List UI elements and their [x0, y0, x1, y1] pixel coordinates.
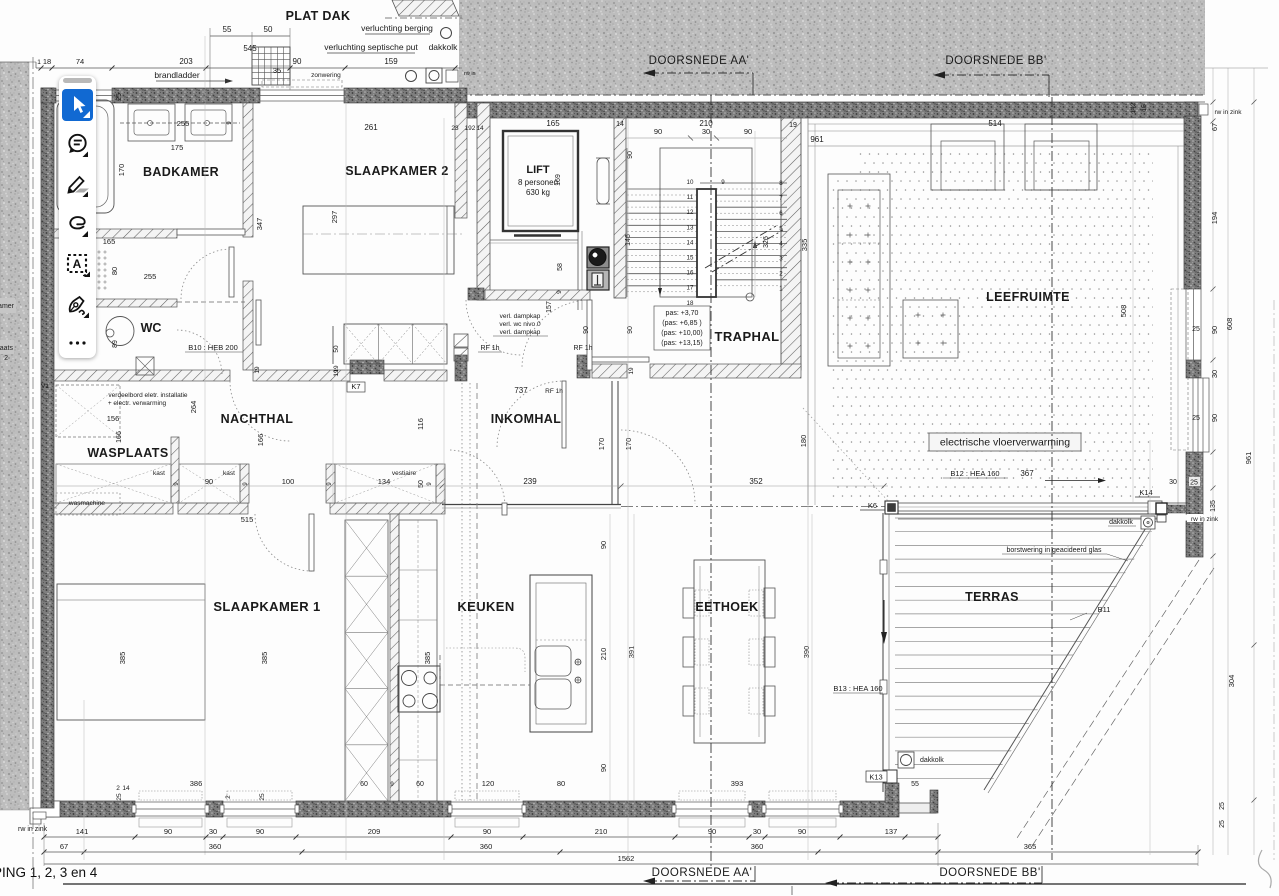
svg-text:194: 194	[1210, 212, 1219, 225]
svg-text:360: 360	[751, 842, 764, 851]
svg-text:391: 391	[627, 646, 636, 659]
svg-text:304: 304	[1227, 675, 1236, 688]
svg-text:19: 19	[254, 366, 261, 374]
svg-text:90: 90	[205, 477, 213, 486]
svg-text:50: 50	[264, 25, 273, 34]
svg-text:80: 80	[557, 779, 565, 788]
svg-text:90: 90	[256, 827, 264, 836]
svg-text:B13 : HEA 160: B13 : HEA 160	[833, 684, 882, 693]
svg-text:255: 255	[144, 272, 157, 281]
svg-text:wasmachine: wasmachine	[68, 500, 106, 507]
svg-text:14: 14	[687, 239, 694, 246]
svg-text:326: 326	[763, 236, 770, 248]
svg-text:30: 30	[753, 827, 761, 836]
svg-text:WC: WC	[141, 321, 162, 335]
svg-text:961: 961	[1244, 452, 1253, 465]
svg-text:17: 17	[687, 285, 694, 292]
svg-text:14: 14	[122, 785, 130, 792]
svg-text:90: 90	[483, 827, 491, 836]
svg-text:6: 6	[779, 210, 783, 217]
svg-text:DOORSNEDE AA': DOORSNEDE AA'	[649, 55, 750, 67]
svg-text:360: 360	[209, 842, 222, 851]
svg-text:347: 347	[255, 218, 264, 231]
svg-text:verl. dampkap: verl. dampkap	[500, 313, 541, 320]
svg-text:DOORSNEDE AA': DOORSNEDE AA'	[652, 867, 753, 879]
svg-text:141: 141	[76, 827, 89, 836]
svg-text:verl. wc nivo 0: verl. wc nivo 0	[499, 321, 541, 328]
svg-text:137: 137	[885, 827, 898, 836]
svg-text:25: 25	[1192, 326, 1200, 333]
svg-text:rw in zink: rw in zink	[1214, 109, 1242, 116]
svg-text:165: 165	[546, 119, 560, 128]
svg-text:961: 961	[810, 135, 824, 144]
svg-text:SLAAPKAMER 2: SLAAPKAMER 2	[345, 164, 448, 178]
svg-text:brandladder: brandladder	[154, 70, 200, 80]
svg-text:dakkolk: dakkolk	[1109, 519, 1133, 526]
svg-text:14: 14	[616, 121, 624, 128]
svg-text:11: 11	[687, 194, 694, 201]
svg-text:19: 19	[628, 367, 635, 375]
svg-text:12: 12	[687, 209, 694, 216]
svg-text:35: 35	[273, 66, 281, 75]
svg-text:170: 170	[117, 164, 126, 177]
svg-text:135: 135	[1210, 500, 1217, 512]
svg-text:(pas: +10,00): (pas: +10,00)	[661, 330, 702, 337]
svg-text:170: 170	[624, 438, 633, 451]
svg-text:365: 365	[1024, 842, 1037, 851]
svg-text:210: 210	[595, 827, 608, 836]
svg-text:90: 90	[1210, 326, 1219, 334]
svg-text:90: 90	[599, 764, 608, 772]
svg-text:385: 385	[423, 652, 432, 665]
svg-text:8: 8	[779, 180, 783, 187]
svg-text:dakkolk: dakkolk	[429, 42, 459, 52]
svg-text:rw in zink: rw in zink	[1191, 516, 1219, 523]
svg-text:K13: K13	[869, 773, 882, 782]
svg-text:90: 90	[654, 127, 662, 136]
svg-text:55: 55	[911, 781, 919, 788]
svg-text:1562: 1562	[618, 854, 635, 863]
svg-text:RF 1h: RF 1h	[480, 345, 499, 352]
svg-text:TERRAS: TERRAS	[965, 590, 1019, 604]
svg-text:25: 25	[1219, 802, 1226, 810]
svg-text:A: A	[73, 257, 82, 271]
svg-text:LIFT: LIFT	[526, 164, 549, 176]
svg-text:25: 25	[1219, 820, 1226, 828]
svg-text:9: 9	[721, 179, 725, 186]
svg-text:15: 15	[687, 255, 694, 262]
svg-text:50: 50	[418, 480, 425, 488]
svg-text:NACHTHAL: NACHTHAL	[221, 412, 294, 426]
svg-text:rw in zink: rw in zink	[18, 826, 48, 833]
svg-text:K14: K14	[1139, 488, 1152, 497]
svg-text:verluchting berging: verluchting berging	[361, 23, 433, 33]
svg-text:255: 255	[177, 119, 190, 128]
svg-text:90: 90	[293, 57, 302, 66]
svg-text:RF 1h: RF 1h	[573, 345, 592, 352]
svg-text:2: 2	[4, 355, 8, 362]
svg-text:RF 1h: RF 1h	[545, 388, 563, 395]
svg-text:360: 360	[480, 842, 493, 851]
svg-text:vestiaire: vestiaire	[392, 470, 417, 477]
svg-text:usplaats: usplaats	[0, 345, 13, 352]
svg-text:19: 19	[333, 365, 340, 373]
svg-text:508: 508	[1119, 305, 1128, 318]
svg-text:239: 239	[523, 477, 537, 486]
svg-text:166: 166	[256, 434, 265, 447]
svg-text:367: 367	[1020, 469, 1034, 478]
svg-text:100: 100	[282, 477, 295, 486]
svg-text:kast: kast	[223, 470, 235, 477]
svg-text:514: 514	[988, 119, 1002, 128]
svg-text:90: 90	[1210, 414, 1219, 422]
svg-text:kast: kast	[153, 470, 165, 477]
svg-text:25: 25	[116, 93, 123, 101]
svg-text:B11: B11	[1098, 605, 1111, 614]
svg-text:30: 30	[1210, 370, 1219, 378]
svg-text:rw in: rw in	[464, 71, 476, 77]
svg-text:1: 1	[779, 286, 783, 293]
svg-text:B10 : HEB 200: B10 : HEB 200	[188, 343, 238, 352]
svg-text:electrische vloerverwarming: electrische vloerverwarming	[940, 437, 1070, 449]
svg-text:170: 170	[597, 438, 606, 451]
svg-text:14: 14	[476, 125, 484, 132]
svg-text:4: 4	[779, 240, 783, 247]
svg-text:WASPLAATS: WASPLAATS	[87, 446, 168, 460]
svg-text:EETHOEK: EETHOEK	[695, 600, 758, 614]
svg-text:DOORSNEDE BB': DOORSNEDE BB'	[939, 867, 1040, 879]
svg-text:25: 25	[259, 793, 266, 801]
svg-text:adkamer: adkamer	[0, 303, 15, 310]
svg-text:385: 385	[260, 652, 269, 665]
svg-text:203: 203	[179, 57, 193, 66]
svg-text:146: 146	[625, 234, 632, 246]
svg-text:58: 58	[557, 263, 564, 271]
svg-text:175: 175	[171, 143, 184, 152]
svg-text:LEEFRUIMTE: LEEFRUIMTE	[986, 290, 1070, 304]
svg-text:134: 134	[378, 477, 391, 486]
svg-text:15: 15	[1141, 104, 1148, 112]
svg-text:55: 55	[223, 25, 232, 34]
svg-text:264: 264	[189, 401, 198, 414]
svg-text:157: 157	[546, 301, 553, 313]
svg-text:+ electr. verwarming: + electr. verwarming	[108, 400, 167, 407]
svg-text:209: 209	[368, 827, 381, 836]
svg-text:23: 23	[451, 125, 459, 132]
svg-text:90: 90	[744, 127, 752, 136]
svg-text:90: 90	[599, 541, 608, 549]
svg-text:verl. dampkap: verl. dampkap	[500, 329, 541, 336]
svg-text:545: 545	[243, 44, 257, 53]
svg-text:7: 7	[779, 195, 783, 202]
svg-text:515: 515	[241, 515, 254, 524]
svg-text:89: 89	[112, 340, 119, 348]
svg-text:zonwering: zonwering	[311, 72, 341, 79]
svg-text:PLAT DAK: PLAT DAK	[286, 9, 351, 23]
svg-text:390: 390	[802, 646, 811, 659]
svg-text:80: 80	[110, 267, 119, 275]
svg-text:352: 352	[749, 477, 763, 486]
svg-text:385: 385	[118, 652, 127, 665]
svg-text:335: 335	[800, 239, 809, 252]
svg-text:19: 19	[789, 122, 797, 129]
svg-text:159: 159	[384, 57, 398, 66]
svg-text:192: 192	[465, 125, 476, 132]
svg-text:165: 165	[103, 237, 116, 246]
svg-text:142: 142	[1130, 102, 1137, 113]
svg-text:67: 67	[1210, 123, 1219, 131]
svg-text:2: 2	[225, 795, 232, 799]
svg-text:(pas: +13,15): (pas: +13,15)	[661, 340, 702, 347]
svg-text:90: 90	[798, 827, 806, 836]
svg-text:180: 180	[799, 435, 808, 448]
svg-text:630 kg: 630 kg	[526, 188, 550, 197]
svg-text:K7: K7	[351, 382, 360, 391]
svg-text:TRAPHAL: TRAPHAL	[715, 329, 780, 344]
svg-text:60: 60	[360, 781, 368, 788]
svg-text:297: 297	[330, 211, 339, 224]
svg-text:608: 608	[1225, 318, 1234, 331]
svg-text:90: 90	[708, 827, 716, 836]
svg-text:25: 25	[116, 793, 123, 801]
svg-text:50: 50	[333, 345, 340, 353]
svg-text:166: 166	[116, 431, 123, 443]
svg-text:30: 30	[209, 827, 217, 836]
svg-text:EPING 1, 2, 3 en 4: EPING 1, 2, 3 en 4	[0, 865, 98, 880]
svg-text:156: 156	[107, 414, 120, 423]
svg-text:2: 2	[116, 785, 120, 792]
svg-text:18: 18	[43, 57, 51, 66]
svg-text:386: 386	[190, 779, 203, 788]
svg-text:210: 210	[599, 648, 608, 661]
svg-text:13: 13	[687, 224, 694, 231]
svg-text:INKOMHAL: INKOMHAL	[491, 412, 562, 426]
svg-text:KEUKEN: KEUKEN	[457, 599, 514, 614]
svg-text:9: 9	[556, 290, 563, 294]
svg-text:3: 3	[779, 256, 783, 263]
svg-text:120: 120	[482, 779, 495, 788]
svg-text:116: 116	[416, 418, 425, 430]
svg-text:DOORSNEDE BB': DOORSNEDE BB'	[945, 55, 1046, 67]
svg-text:30: 30	[1169, 479, 1177, 486]
svg-text:1: 1	[37, 59, 41, 66]
svg-text:BADKAMER: BADKAMER	[143, 165, 219, 179]
svg-text:90: 90	[583, 326, 590, 334]
svg-text:90: 90	[164, 827, 172, 836]
svg-text:25: 25	[1190, 480, 1198, 487]
svg-text:261: 261	[364, 123, 378, 132]
svg-text:393: 393	[731, 779, 744, 788]
svg-text:67: 67	[60, 842, 68, 851]
svg-text:K6: K6	[868, 501, 877, 510]
svg-text:25: 25	[1192, 415, 1200, 422]
svg-text:60: 60	[416, 781, 424, 788]
svg-text:2: 2	[779, 271, 783, 278]
svg-text:8 personen: 8 personen	[518, 178, 558, 187]
svg-text:737: 737	[514, 386, 528, 395]
svg-text:borstwering in geacideerd glas: borstwering in geacideerd glas	[1007, 547, 1102, 554]
svg-text:169: 169	[555, 174, 562, 186]
svg-text:pas: +3,70: pas: +3,70	[666, 310, 699, 317]
svg-text:74: 74	[76, 57, 84, 66]
svg-text:SLAAPKAMER 1: SLAAPKAMER 1	[213, 599, 320, 614]
svg-text:(pas: +6,85 ): (pas: +6,85 )	[662, 320, 702, 327]
svg-text:30: 30	[702, 127, 710, 136]
svg-text:10: 10	[687, 179, 694, 186]
svg-text:verdeelbord eletr. installatie: verdeelbord eletr. installatie	[108, 392, 188, 399]
svg-text:verluchting septische put: verluchting septische put	[324, 42, 418, 52]
svg-text:B12 : HEA 160: B12 : HEA 160	[950, 469, 999, 478]
svg-text:dakkolk: dakkolk	[920, 757, 944, 764]
svg-text:V1: V1	[41, 383, 49, 390]
svg-text:16: 16	[687, 270, 694, 277]
